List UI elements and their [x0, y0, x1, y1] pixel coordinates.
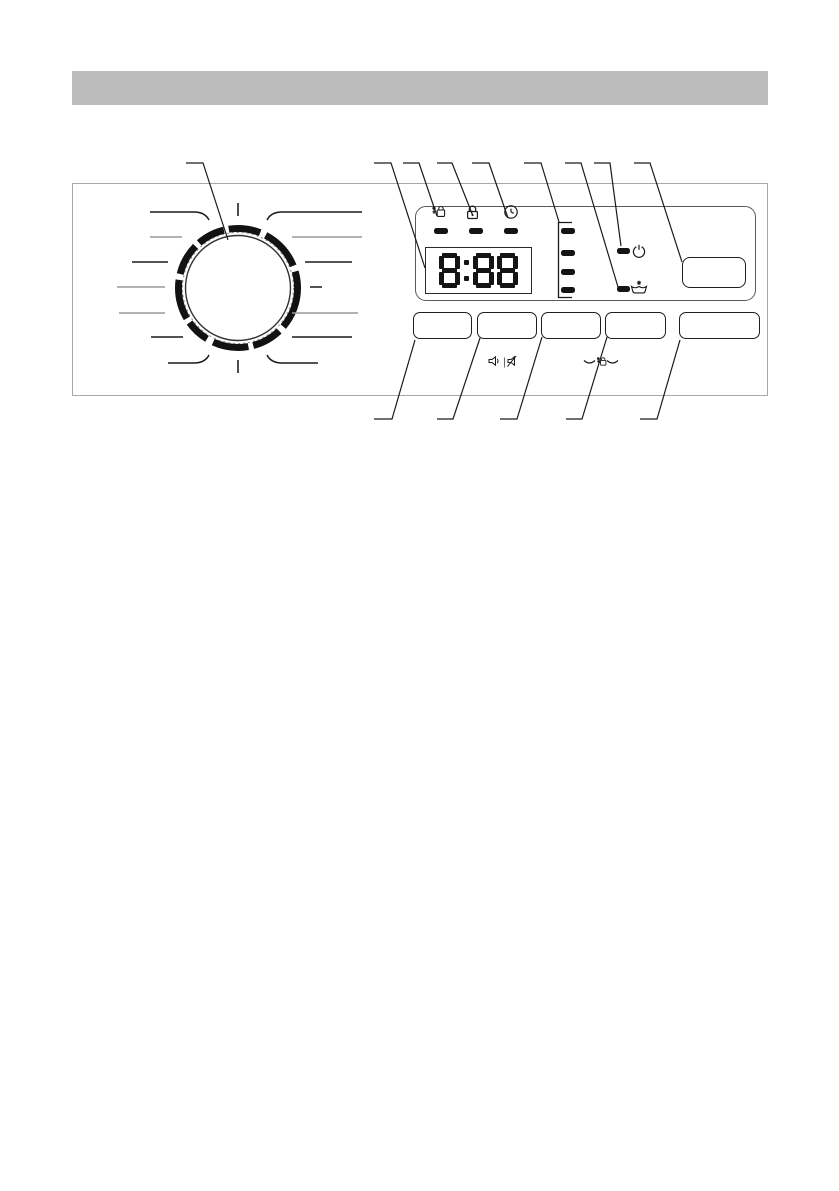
start-pause-button[interactable] — [682, 257, 746, 288]
option-button-5[interactable] — [679, 312, 760, 339]
manual-page — [0, 0, 839, 1191]
tub-led — [617, 286, 630, 292]
child-lock-led — [434, 228, 448, 234]
option-button-4[interactable] — [605, 312, 666, 339]
phase-led-3 — [561, 269, 575, 275]
section-header-bar — [72, 71, 768, 105]
option-button-3[interactable] — [541, 312, 601, 339]
phase-led-4 — [561, 287, 575, 293]
display-digit — [473, 253, 494, 288]
option-button-2[interactable] — [477, 312, 537, 339]
display-digit — [497, 253, 518, 288]
display-colon — [463, 253, 470, 288]
delay-start-led — [504, 228, 518, 234]
door-locked-led — [469, 228, 483, 234]
power-led — [617, 248, 630, 254]
option-button-1[interactable] — [413, 312, 472, 339]
display-digit — [439, 253, 460, 288]
digital-display — [425, 247, 532, 294]
phase-led-2 — [561, 250, 575, 256]
phase-led-1 — [561, 228, 575, 234]
